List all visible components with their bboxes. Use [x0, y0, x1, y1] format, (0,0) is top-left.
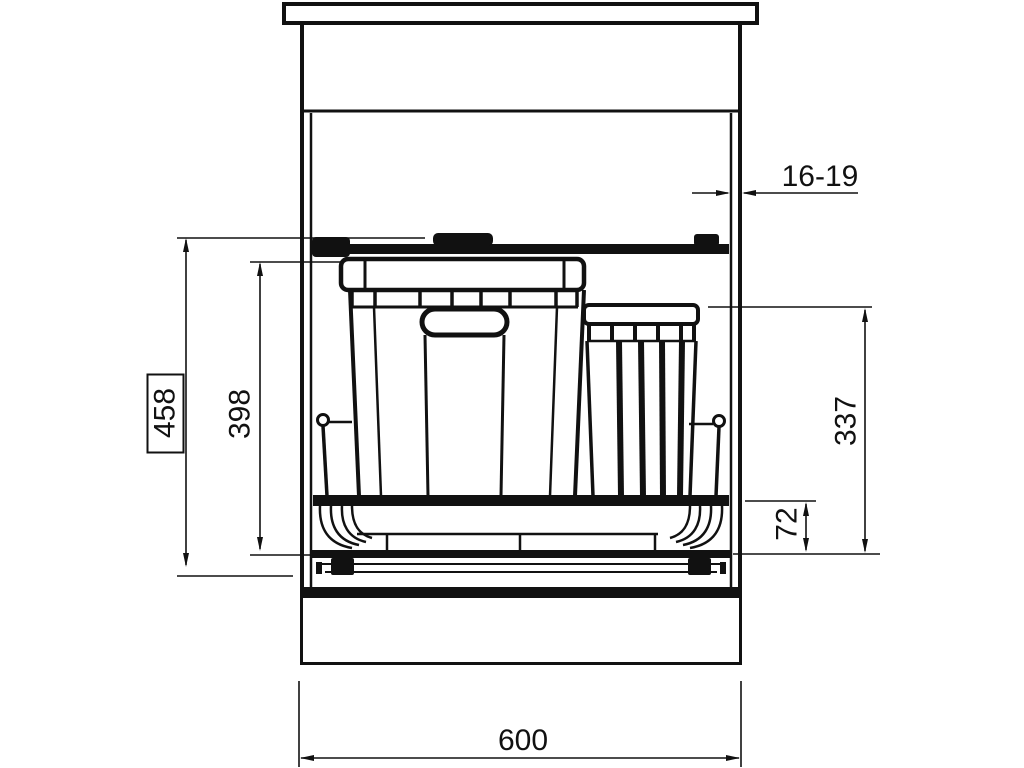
arrowhead-down — [862, 539, 868, 553]
arrowhead-left — [300, 755, 314, 761]
technical-drawing-canvas: 458 398 337 72 16-19 — [0, 0, 1024, 768]
dimension-label-panel-thickness: 16-19 — [782, 160, 859, 193]
basket-mid-wires — [357, 534, 658, 550]
arrowhead-left — [742, 190, 756, 196]
dimension-label-large-bin-height: 398 — [224, 389, 257, 439]
right-post — [716, 427, 719, 496]
left-post-ball — [318, 415, 329, 426]
arrowhead-down — [257, 537, 263, 551]
dimension-large-bin-height: 398 — [224, 262, 342, 555]
small-bin-rim — [584, 305, 698, 324]
plinth — [302, 597, 741, 664]
wire-basket-frame — [312, 415, 730, 576]
arrowhead-up — [183, 238, 189, 252]
top-rail-bar — [311, 244, 729, 254]
left-post — [323, 426, 327, 496]
arrowhead-down — [183, 553, 189, 567]
arrowhead-right — [716, 190, 730, 196]
large-bin-rim-slots — [352, 291, 577, 307]
dimension-bottom-frame-height: 72 — [745, 501, 816, 552]
cabinet-carcass — [300, 23, 742, 664]
right-post-ball — [714, 416, 725, 427]
small-bin-rim-slots — [588, 324, 695, 341]
countertop-slab — [284, 4, 757, 23]
dimension-panel-thickness: 16-19 — [692, 160, 858, 196]
dimension-label-pullout-height: 458 — [149, 388, 182, 438]
cabinet-pullout-bin-drawing: 458 398 337 72 16-19 — [0, 0, 1024, 768]
slide-rails — [316, 562, 726, 574]
dimension-label-cabinet-width: 600 — [498, 724, 548, 757]
dimension-label-bottom-frame-height: 72 — [771, 507, 804, 540]
right-mount-clip — [694, 234, 719, 246]
basket-top-rail — [313, 495, 729, 506]
dimension-label-small-bin-height: 337 — [830, 396, 863, 446]
dimension-cabinet-width: 600 — [299, 681, 741, 767]
arrowhead-up — [803, 502, 809, 516]
large-bin-handle — [422, 309, 507, 335]
small-bin-body — [587, 341, 696, 496]
large-bin-body — [350, 290, 584, 496]
pullout-top-rail — [311, 233, 729, 257]
large-bin-lid — [341, 259, 584, 290]
left-mount-clip — [312, 237, 350, 257]
large-waste-bin — [341, 259, 584, 496]
cabinet-bottom-panel — [300, 587, 742, 595]
right-foot — [688, 558, 711, 575]
arrowhead-right — [726, 755, 740, 761]
small-waste-bin — [584, 305, 698, 496]
arrowhead-down — [803, 538, 809, 552]
countertop — [284, 4, 757, 23]
arrowhead-up — [257, 262, 263, 276]
arrowhead-up — [862, 308, 868, 322]
center-mount-clip — [433, 233, 493, 246]
left-foot — [331, 558, 354, 575]
basket-base-rail — [312, 550, 730, 558]
